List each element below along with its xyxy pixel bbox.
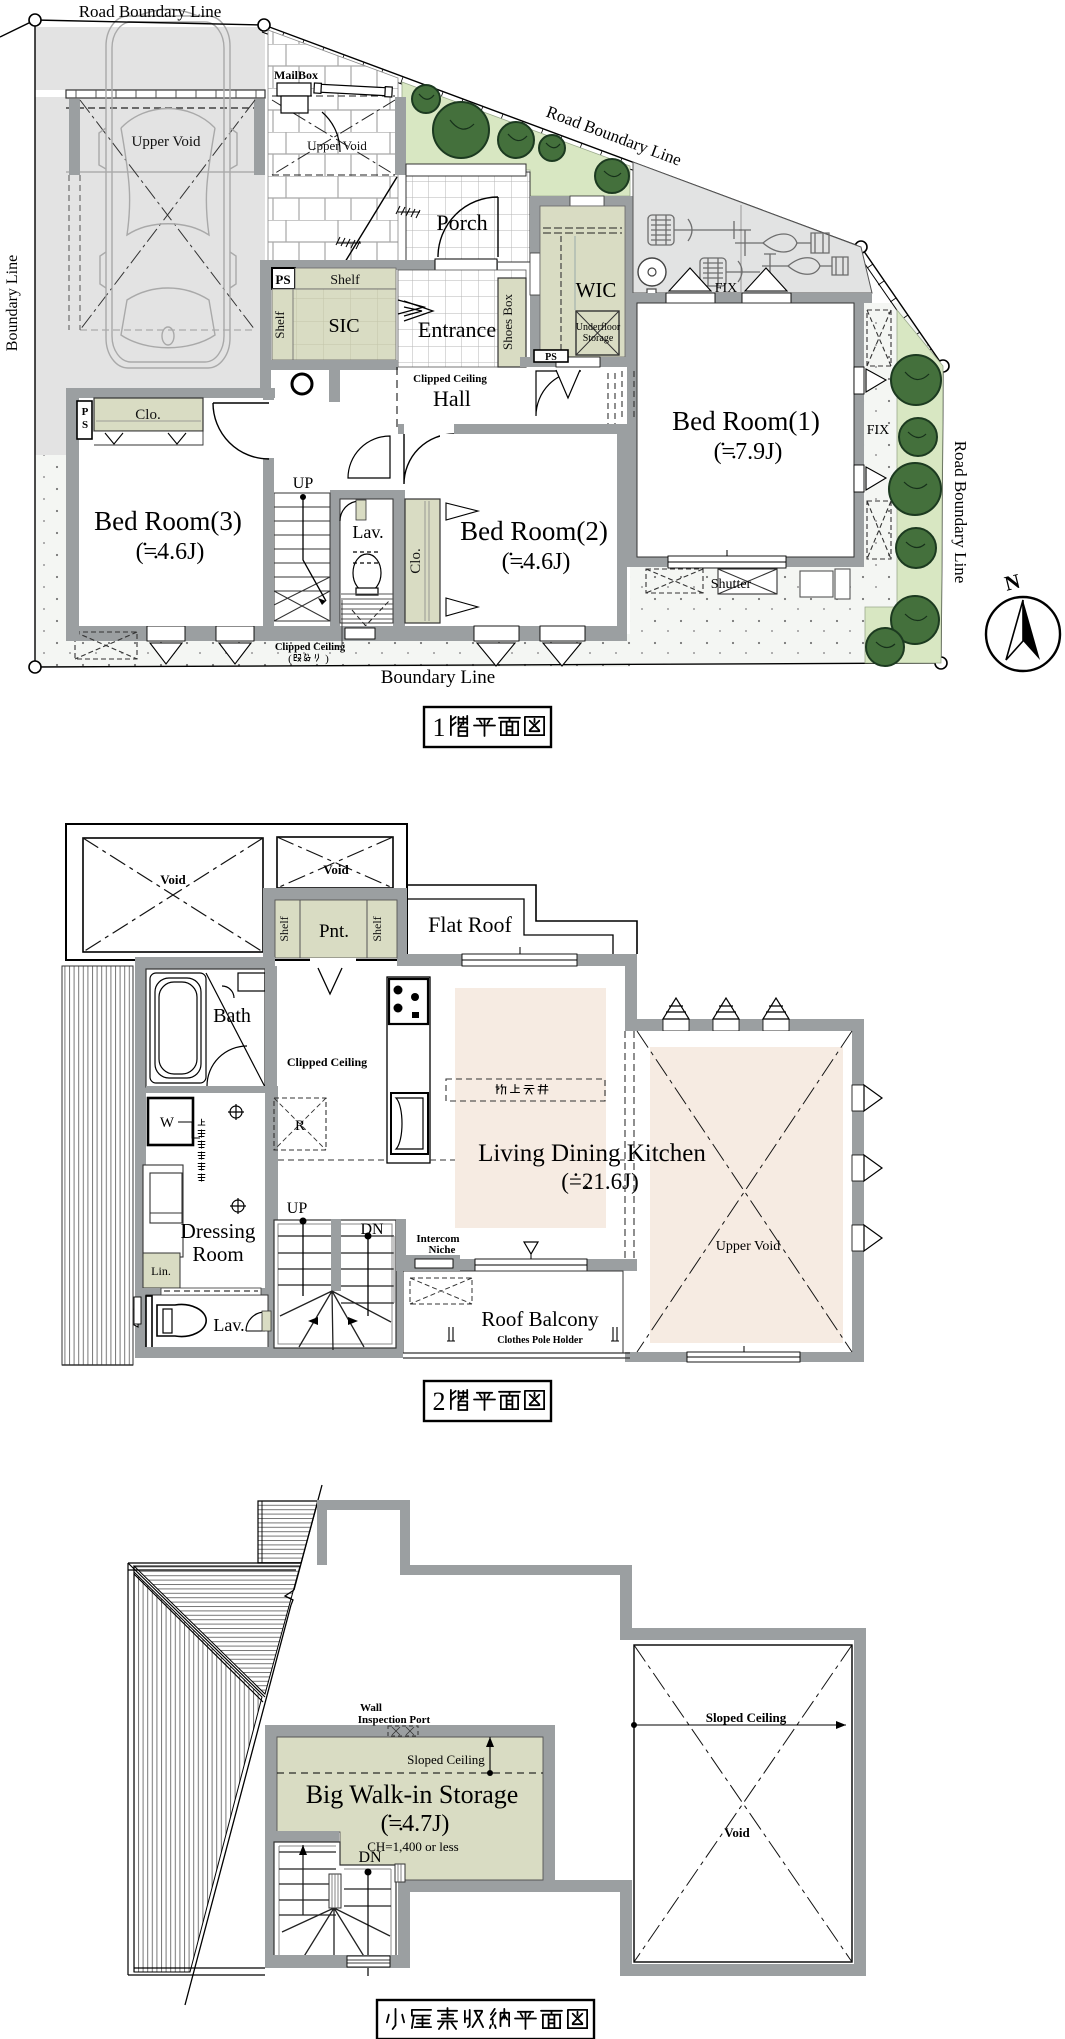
svg-text:MailBox: MailBox <box>274 68 318 82</box>
svg-text:FIX: FIX <box>867 423 890 438</box>
svg-text:Sloped Ceiling: Sloped Ceiling <box>706 1710 787 1725</box>
svg-text:Road Boundary Line: Road Boundary Line <box>79 2 222 21</box>
svg-text:PS: PS <box>275 272 290 287</box>
svg-text:(: ( <box>288 653 292 665</box>
svg-text:1: 1 <box>433 713 446 742</box>
svg-text:Underfloor: Underfloor <box>576 322 621 333</box>
svg-text:Pnt.: Pnt. <box>319 921 349 942</box>
svg-text:Bath: Bath <box>213 1005 251 1027</box>
svg-text:DN: DN <box>358 1849 382 1866</box>
svg-text:Upper Void: Upper Void <box>131 134 201 150</box>
svg-text:Wall: Wall <box>360 1702 382 1714</box>
svg-text:WIC: WIC <box>576 278 617 302</box>
svg-text:Clipped Ceiling: Clipped Ceiling <box>413 373 487 385</box>
svg-text:(=4.6J): (=4.6J) <box>502 549 571 575</box>
svg-text:Road Boundary Line: Road Boundary Line <box>951 441 970 584</box>
svg-text:P: P <box>82 406 89 418</box>
svg-text:Shelf: Shelf <box>370 916 384 941</box>
svg-text:Dressing: Dressing <box>181 1219 256 1243</box>
svg-text:Roof Balcony: Roof Balcony <box>481 1307 599 1331</box>
svg-text:Shelf: Shelf <box>277 916 291 941</box>
svg-text:PS: PS <box>545 352 557 363</box>
svg-text:Bed Room(3): Bed Room(3) <box>94 506 242 536</box>
svg-text:Shutter: Shutter <box>711 577 752 592</box>
svg-text:UP: UP <box>293 475 314 492</box>
svg-text:Sloped Ceiling: Sloped Ceiling <box>407 1752 485 1767</box>
svg-text:Storage: Storage <box>583 333 614 344</box>
svg-text:Shelf: Shelf <box>330 273 360 288</box>
svg-text:Lav.: Lav. <box>352 522 383 542</box>
svg-text:Lin.: Lin. <box>151 1264 171 1278</box>
svg-text:(=21.6J): (=21.6J) <box>561 1169 639 1194</box>
svg-text:W: W <box>160 1115 175 1131</box>
svg-text:Upper Void: Upper Void <box>307 138 367 153</box>
svg-text:S: S <box>82 419 88 431</box>
svg-text:2: 2 <box>433 1387 446 1416</box>
svg-text:R: R <box>295 1118 305 1134</box>
svg-text:(=7.9J): (=7.9J) <box>714 439 783 465</box>
svg-text:Clipped Ceiling: Clipped Ceiling <box>287 1055 367 1069</box>
svg-text:(=4.7J): (=4.7J) <box>381 1811 450 1837</box>
svg-text:Void: Void <box>323 862 349 877</box>
svg-text:Bed Room(1): Bed Room(1) <box>672 406 820 436</box>
svg-text:Clipped Ceiling: Clipped Ceiling <box>275 642 346 653</box>
svg-text:Boundary Line: Boundary Line <box>4 255 21 351</box>
svg-text:Clo.: Clo. <box>135 407 160 423</box>
svg-text:Inspection Port: Inspection Port <box>358 1714 431 1726</box>
svg-text:Hall: Hall <box>433 386 471 411</box>
svg-text:Flat Roof: Flat Roof <box>428 912 512 937</box>
svg-text:Big Walk-in Storage: Big Walk-in Storage <box>306 1780 519 1809</box>
svg-text:UP: UP <box>287 1200 308 1217</box>
svg-text:Room: Room <box>192 1242 243 1266</box>
svg-text:Lav.: Lav. <box>213 1315 244 1335</box>
svg-text:Living Dining Kitchen: Living Dining Kitchen <box>478 1140 706 1167</box>
svg-text:Entrance: Entrance <box>418 317 496 342</box>
svg-text:(=4.6J): (=4.6J) <box>136 539 205 565</box>
svg-text:Boundary Line: Boundary Line <box>381 667 496 688</box>
svg-text:Bed Room(2): Bed Room(2) <box>460 516 608 546</box>
svg-text:Clo.: Clo. <box>408 548 424 573</box>
svg-text:Void: Void <box>160 872 186 887</box>
svg-text:): ) <box>325 653 329 665</box>
svg-text:DN: DN <box>360 1221 384 1238</box>
svg-text:Shoes Box: Shoes Box <box>500 294 515 350</box>
svg-text:Shelf: Shelf <box>272 311 287 339</box>
svg-text:SIC: SIC <box>328 315 359 337</box>
svg-text:Upper Void: Upper Void <box>716 1239 780 1254</box>
svg-text:Niche: Niche <box>429 1244 456 1256</box>
svg-text:Void: Void <box>724 1825 750 1840</box>
svg-text:Clothes Pole Holder: Clothes Pole Holder <box>497 1335 583 1346</box>
